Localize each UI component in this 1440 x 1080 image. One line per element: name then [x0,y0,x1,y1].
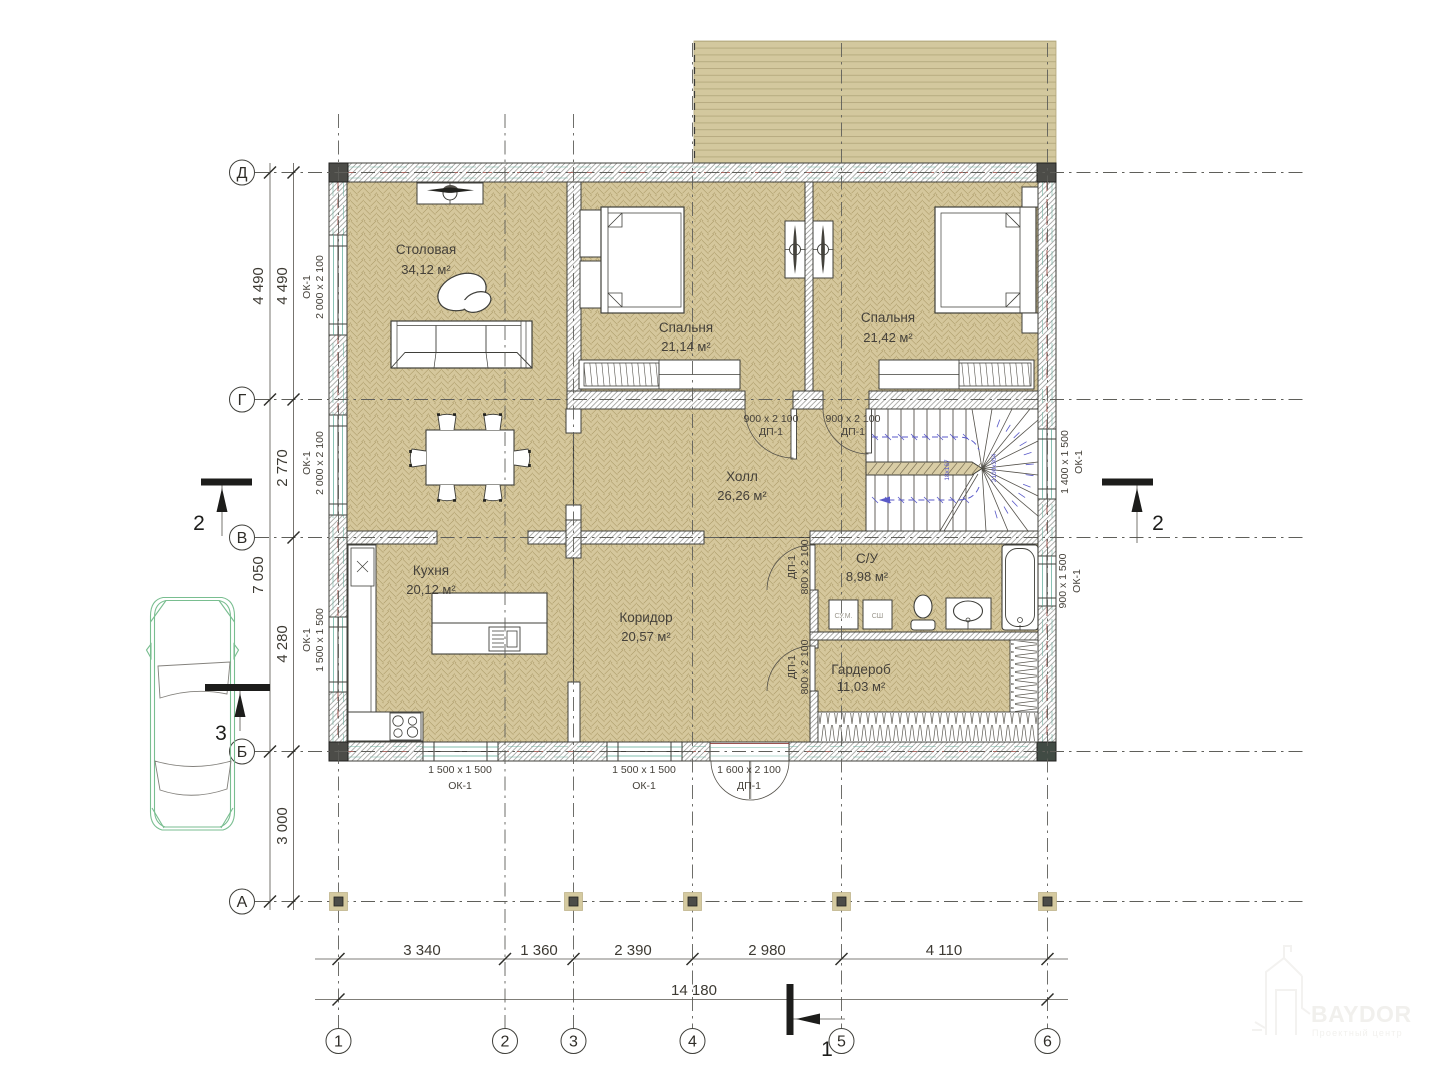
svg-text:ОК-1: ОК-1 [448,780,472,792]
svg-text:2 980: 2 980 [748,942,786,959]
svg-text:900 х 2 100: 900 х 2 100 [744,413,799,425]
svg-text:1: 1 [334,1034,343,1051]
svg-text:ОК-1: ОК-1 [301,275,313,299]
svg-text:2 000 х 2 100: 2 000 х 2 100 [314,431,326,495]
svg-text:ДП-1: ДП-1 [841,426,865,438]
svg-text:А: А [237,894,248,911]
svg-text:900 х 1 500: 900 х 1 500 [1057,553,1069,608]
svg-text:14 180: 14 180 [671,982,717,999]
svg-text:8,98 м²: 8,98 м² [846,569,889,584]
svg-text:900 х 2 100: 900 х 2 100 [826,413,881,425]
svg-text:1: 1 [821,1038,833,1061]
svg-text:Кухня: Кухня [413,563,449,578]
svg-text:Спальня: Спальня [659,320,713,335]
svg-text:ДП-1: ДП-1 [786,555,798,579]
svg-text:21,42 м²: 21,42 м² [863,330,913,345]
svg-text:3 000: 3 000 [274,807,291,845]
svg-text:ДП-1: ДП-1 [759,426,783,438]
svg-text:3: 3 [569,1034,578,1051]
svg-text:ОК-1: ОК-1 [301,451,313,475]
svg-text:5: 5 [837,1034,846,1051]
svg-text:11,03 м²: 11,03 м² [837,679,886,694]
svg-text:С/У: С/У [856,551,879,566]
svg-text:800 х 2 100: 800 х 2 100 [799,639,811,694]
svg-text:Столовая: Столовая [396,242,456,257]
svg-text:18x167: 18x167 [944,459,951,481]
svg-text:ОК-1: ОК-1 [301,628,313,652]
svg-text:34,12 м²: 34,12 м² [401,262,451,277]
svg-text:26,26 м²: 26,26 м² [717,488,767,503]
svg-text:1 400 х 1 500: 1 400 х 1 500 [1059,430,1071,494]
svg-text:1 360: 1 360 [520,942,558,959]
svg-text:ДП-1: ДП-1 [737,780,761,792]
svg-text:ДП-1: ДП-1 [786,655,798,679]
svg-text:20,12 м²: 20,12 м² [406,582,456,597]
svg-text:Б: Б [237,744,248,761]
svg-text:СУ.М.: СУ.М. [834,613,852,620]
svg-text:4 280: 4 280 [274,625,291,663]
svg-text:2 000 х 2 100: 2 000 х 2 100 [314,255,326,319]
svg-text:BAYDOR: BAYDOR [1311,1001,1412,1027]
svg-text:Гардероб: Гардероб [831,662,891,677]
svg-text:6: 6 [1043,1034,1052,1051]
svg-text:Спальня: Спальня [861,310,915,325]
svg-text:800 х 2 100: 800 х 2 100 [799,539,811,594]
svg-text:1 500 х 1 500: 1 500 х 1 500 [314,608,326,672]
svg-text:1 500 х 1 500: 1 500 х 1 500 [612,764,676,776]
svg-text:20,57 м²: 20,57 м² [621,629,671,644]
svg-text:ОК-1: ОК-1 [1073,450,1085,474]
svg-text:Коридор: Коридор [619,610,672,625]
svg-text:2: 2 [501,1034,510,1051]
svg-text:4 110: 4 110 [926,942,962,959]
svg-text:1 500 х 1 500: 1 500 х 1 500 [428,764,492,776]
svg-text:Холл: Холл [726,469,758,484]
svg-text:4: 4 [688,1034,697,1051]
svg-text:21,14 м²: 21,14 м² [661,339,711,354]
svg-text:1 600 х 2 100: 1 600 х 2 100 [717,764,781,776]
svg-text:3: 3 [215,722,227,745]
svg-text:2 770: 2 770 [274,449,291,487]
svg-text:7 050: 7 050 [250,556,267,594]
svg-text:3 340: 3 340 [403,942,441,959]
svg-text:Г: Г [238,392,247,409]
svg-text:СШ: СШ [872,613,883,620]
svg-text:ОК-1: ОК-1 [632,780,656,792]
svg-text:2 390: 2 390 [614,942,652,959]
svg-text:2100x304: 2100x304 [991,453,998,482]
svg-text:В: В [237,530,248,547]
svg-text:Проектный центр: Проектный центр [1312,1028,1403,1038]
svg-text:Д: Д [237,165,248,182]
svg-text:ОК-1: ОК-1 [1071,569,1083,593]
svg-text:2: 2 [1152,512,1164,535]
svg-text:2: 2 [193,512,205,535]
svg-text:4 490: 4 490 [250,267,267,305]
svg-text:4 490: 4 490 [274,267,291,305]
